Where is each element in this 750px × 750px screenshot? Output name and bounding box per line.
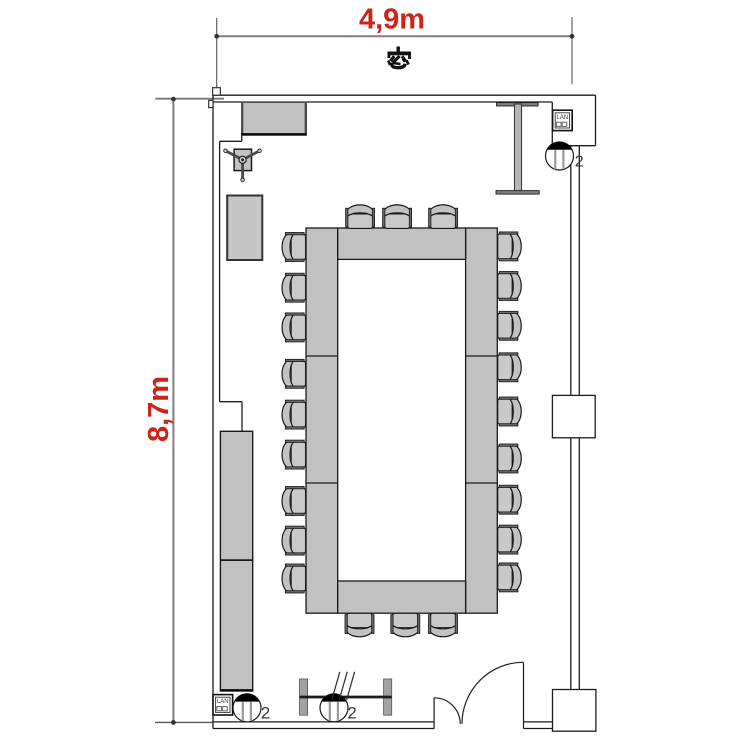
svg-text:2: 2 bbox=[575, 154, 584, 171]
svg-text:2: 2 bbox=[261, 704, 270, 723]
svg-text:8,7m: 8,7m bbox=[143, 376, 175, 442]
svg-text:2: 2 bbox=[347, 704, 356, 723]
svg-text:4,9m: 4,9m bbox=[359, 4, 425, 36]
